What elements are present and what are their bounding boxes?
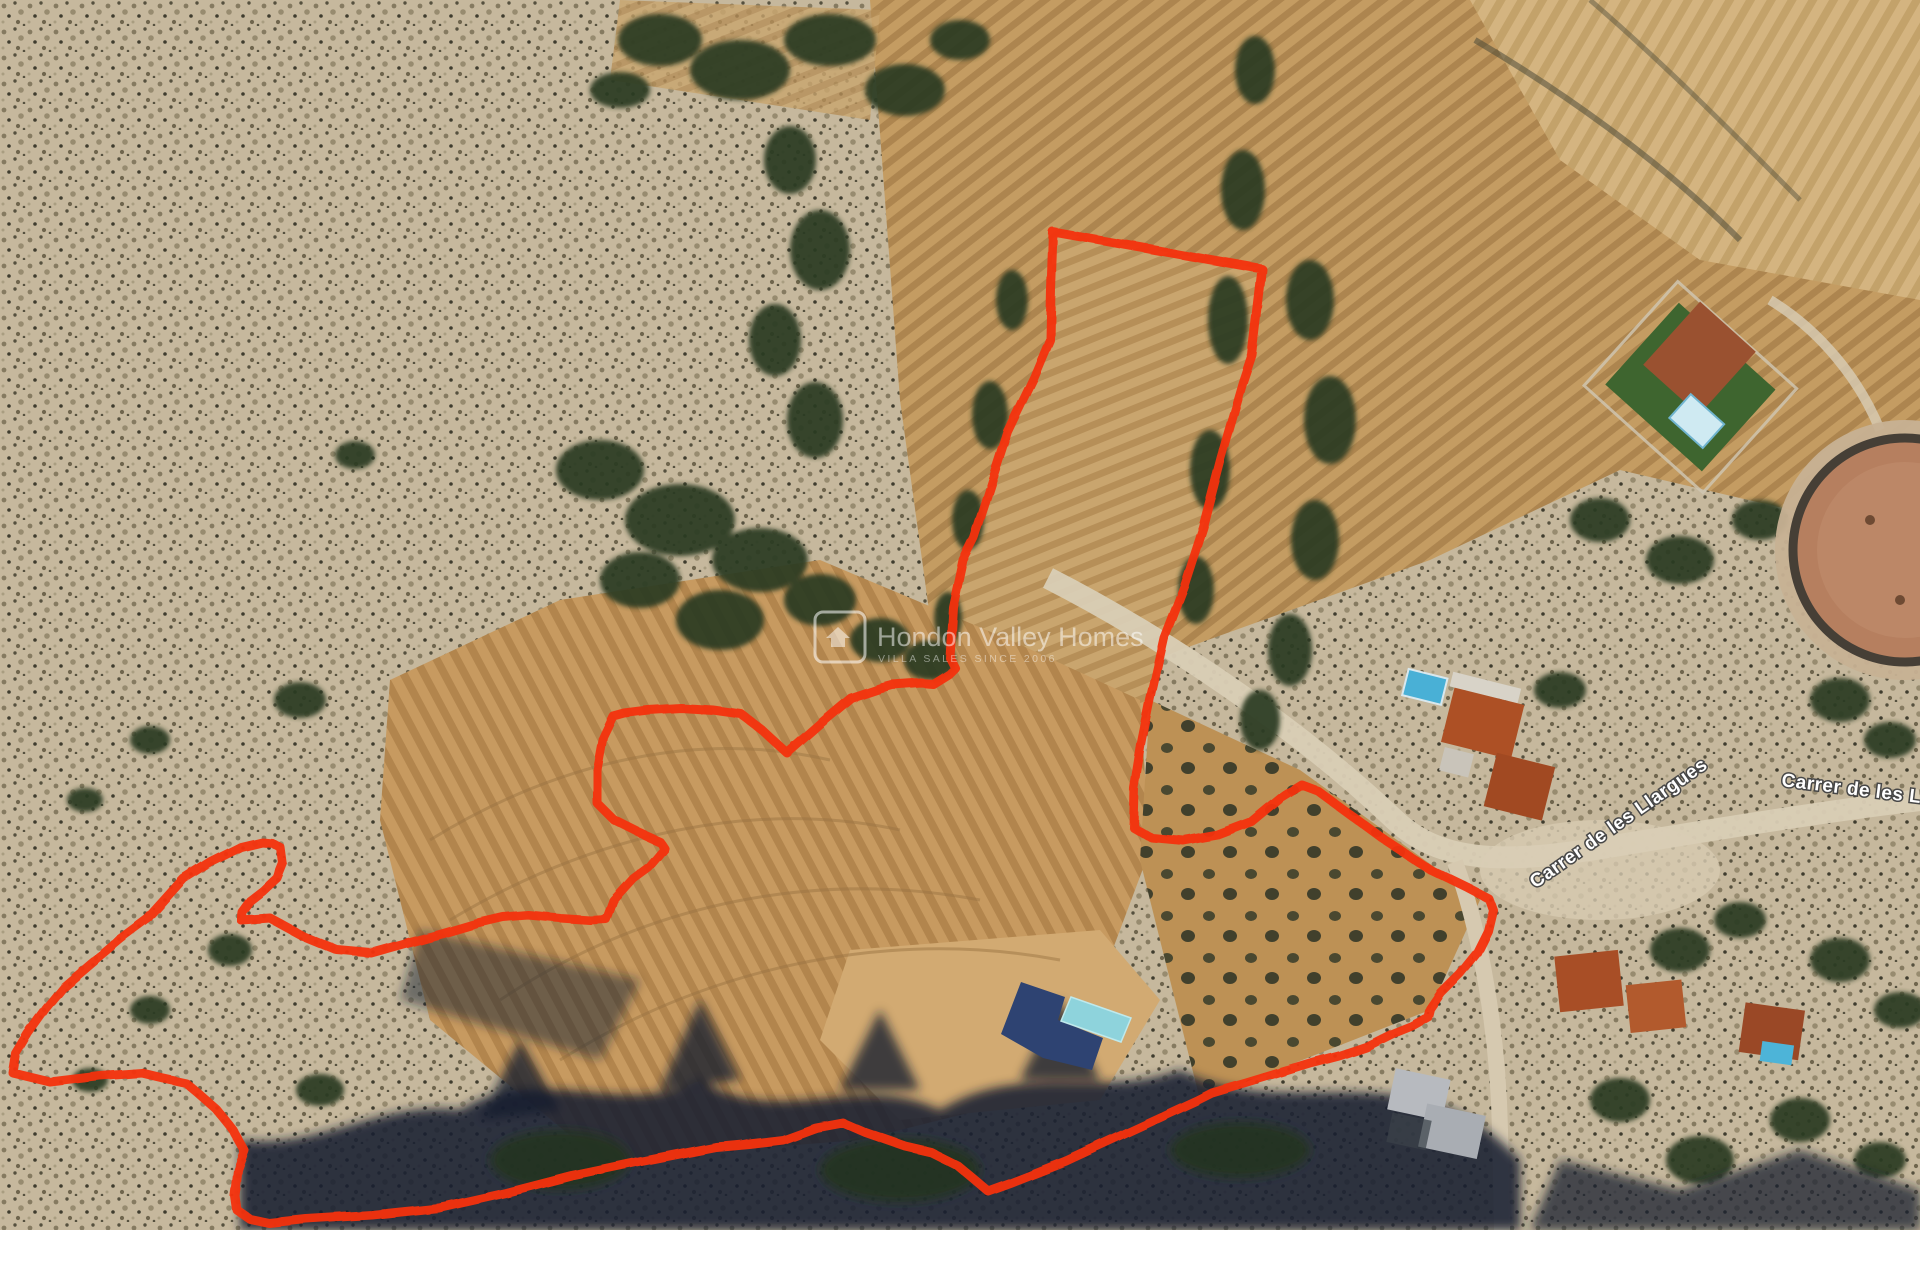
satellite-map: Carrer de les Llargues Carrer de les Lla… [0, 0, 1920, 1280]
watermark-title: Hondon Valley Homes [877, 622, 1144, 652]
satellite-image: Carrer de les Llargues Carrer de les Lla… [0, 0, 1920, 1280]
watermark-subtitle: VILLA SALES SINCE 2006 [878, 653, 1057, 665]
bottom-margin [0, 1230, 1920, 1280]
